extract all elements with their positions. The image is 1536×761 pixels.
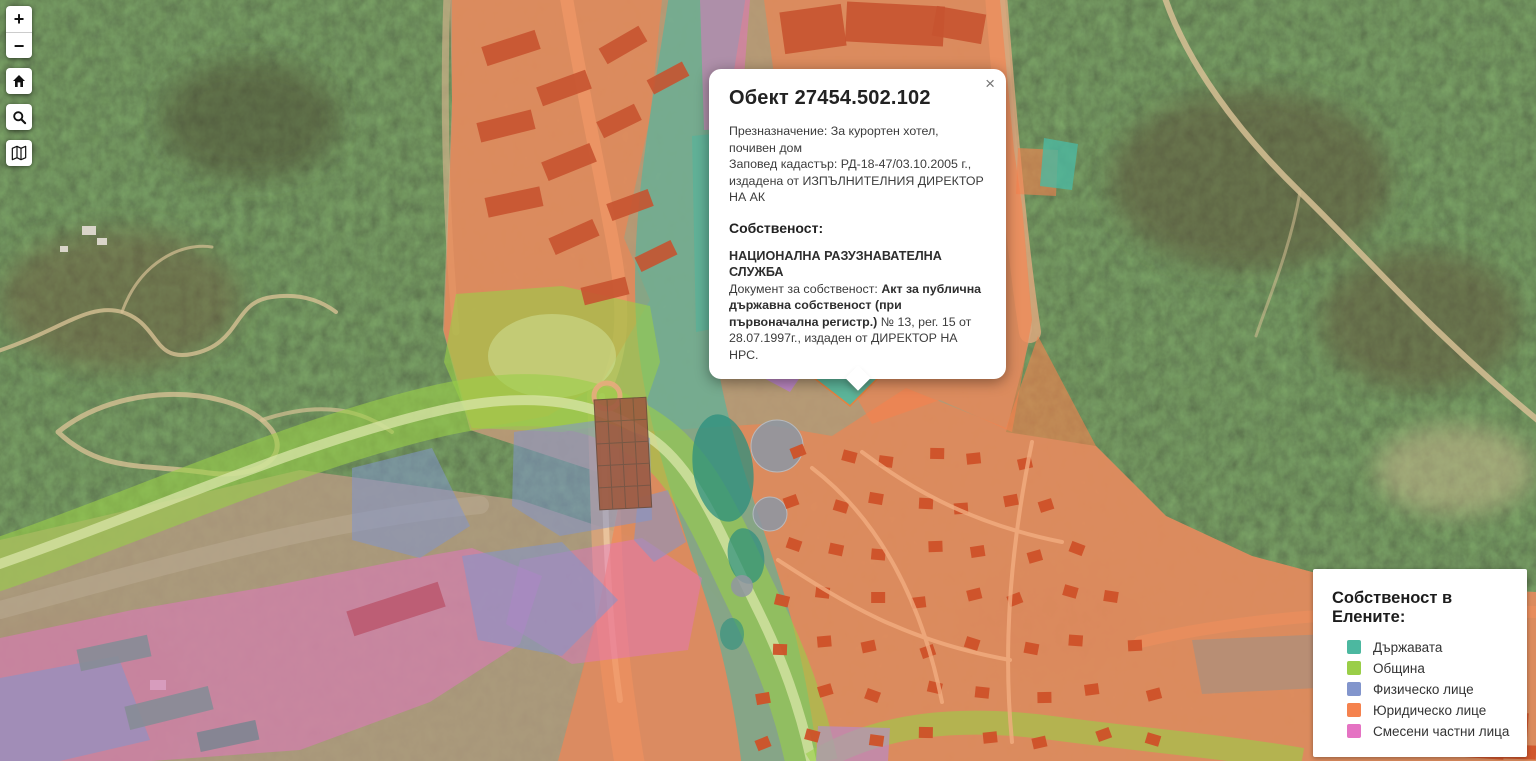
legend-label: Смесени частни лица [1373, 724, 1509, 739]
building [919, 727, 933, 738]
building [779, 4, 846, 54]
legend-title: Собственост в Елените: [1332, 589, 1513, 627]
zoom-in-button[interactable]: + [6, 6, 32, 32]
zoom-control: + − [6, 6, 32, 58]
legend-item-mixed: Смесени частни лица [1347, 724, 1513, 738]
parcel-info-popup: × Обект 27454.502.102 Презназначение: За… [709, 69, 1006, 379]
building [869, 734, 884, 747]
popup-owner-name: НАЦИОНАЛНА РАЗУЗНАВАТЕЛНА СЛУЖБА [729, 248, 986, 281]
building [1037, 692, 1051, 703]
ownership-legend: Собственост в Елените: Държавата Община … [1313, 569, 1527, 757]
building [928, 541, 942, 552]
building [966, 452, 981, 464]
building [975, 686, 990, 698]
building [919, 498, 934, 510]
legend-swatch-mixed [1347, 724, 1361, 738]
state-parcel-cross [1040, 138, 1078, 190]
popup-ownership-heading: Собственост: [729, 220, 986, 236]
legend-swatch-person [1347, 682, 1361, 696]
home-button[interactable] [6, 68, 32, 94]
legend-item-municipality: Община [1347, 661, 1513, 675]
building [773, 644, 787, 655]
search-icon [12, 110, 27, 125]
home-control [6, 68, 32, 94]
building [1103, 590, 1119, 603]
legend-label: Държавата [1373, 640, 1442, 655]
legend-label: Община [1373, 661, 1425, 676]
map-application: + − × Обект 27454.502.102 Презназначени [0, 0, 1536, 761]
map-book-icon [11, 145, 27, 161]
popup-purpose-text: Презназначение: За курортен хотел, почив… [729, 123, 986, 206]
legend-label: Физическо лице [1373, 682, 1474, 697]
zoom-out-button[interactable]: − [6, 32, 32, 58]
popup-order-text: Заповед кадастър: РД-18-47/03.10.2005 г.… [729, 157, 984, 204]
legend-item-person: Физическо лице [1347, 682, 1513, 696]
building [1084, 683, 1099, 696]
popup-ownership-document: Документ за собственост: Акт за публична… [729, 281, 986, 364]
building [983, 731, 998, 743]
building [970, 545, 986, 558]
legend-item-state: Държавата [1347, 640, 1513, 654]
popup-close-button[interactable]: × [983, 73, 997, 94]
legend-label: Юридическо лице [1373, 703, 1486, 718]
search-control [6, 104, 32, 130]
building [1128, 640, 1143, 652]
building [871, 592, 885, 603]
legend-swatch-corporate [1347, 703, 1361, 717]
popup-title: Обект 27454.502.102 [729, 87, 986, 110]
grid-roof-building [594, 397, 652, 510]
building [1068, 635, 1083, 647]
legend-swatch-state [1347, 640, 1361, 654]
building [930, 448, 944, 459]
legend-swatch-municipality [1347, 661, 1361, 675]
layers-control [6, 140, 32, 166]
building [817, 635, 832, 647]
home-icon [11, 73, 27, 89]
building [845, 1, 945, 46]
legend-item-corporate: Юридическо лице [1347, 703, 1513, 717]
search-button[interactable] [6, 104, 32, 130]
map-layers-button[interactable] [6, 140, 32, 166]
